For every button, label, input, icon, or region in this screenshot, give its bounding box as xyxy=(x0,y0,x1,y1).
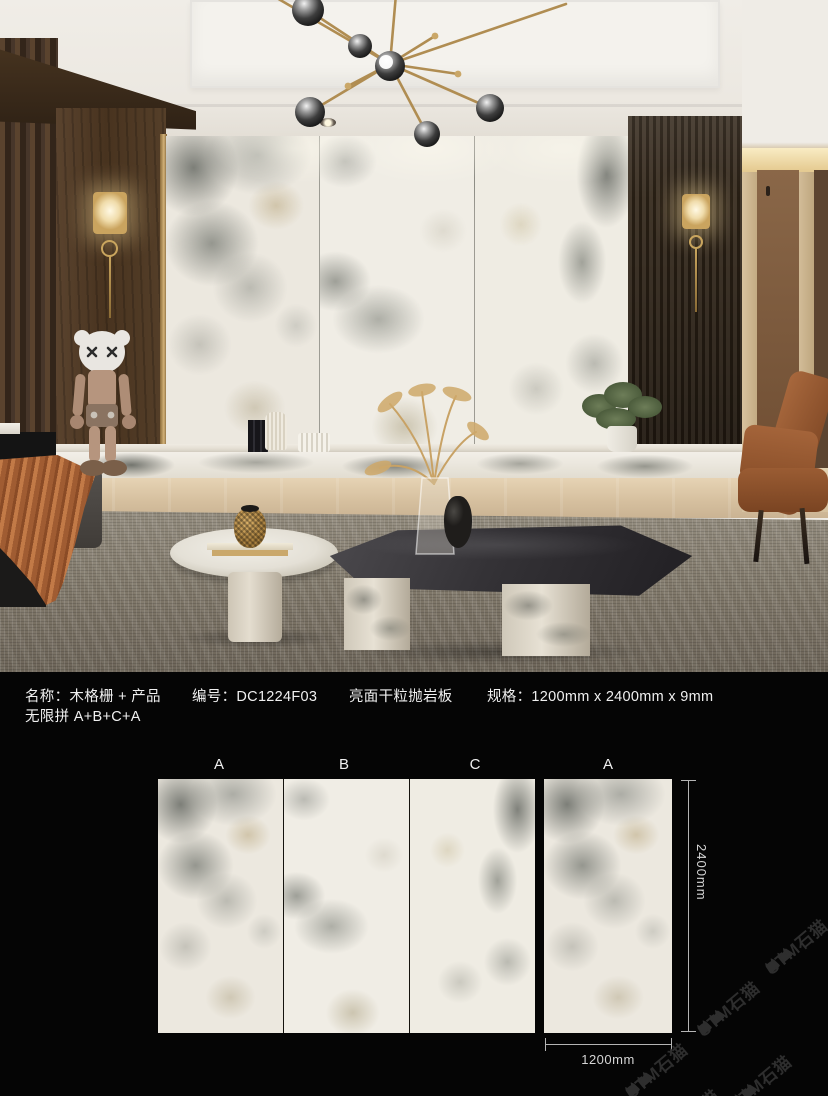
living-room-scene xyxy=(0,0,828,672)
black-vase xyxy=(444,496,472,548)
slab-a-single xyxy=(544,779,672,1033)
slab-c xyxy=(409,779,535,1033)
sconce-ring xyxy=(101,240,118,257)
sconce-shade xyxy=(93,192,127,234)
slab-label-c: C xyxy=(470,756,481,773)
sputnik-chandelier xyxy=(230,0,570,170)
chair-seat xyxy=(738,468,828,512)
dimension-tick xyxy=(545,1038,546,1051)
round-table-base xyxy=(228,572,282,642)
sconce-rod xyxy=(695,248,697,312)
product-spec: 规格：1200mm x 2400mm x 9mm xyxy=(487,685,713,706)
vase-mouth xyxy=(241,505,259,512)
slab-label-a: A xyxy=(214,756,224,773)
slab-panel-group xyxy=(158,779,535,1033)
kaws-figure xyxy=(62,328,148,480)
product-poster: 名称：木格栅 + 产品 编号：DC1224F03 亮面干粒抛岩板 规格：1200… xyxy=(0,0,828,1096)
coffee-table-books xyxy=(212,550,288,556)
slab-label-a2: A xyxy=(603,756,613,773)
sconce-ring xyxy=(689,235,703,249)
sconce-shade xyxy=(682,194,710,229)
slab-b xyxy=(283,779,409,1033)
product-name: 名称：木格栅 + 产品 xyxy=(25,685,161,706)
woven-gold-vase xyxy=(234,508,266,548)
product-finish: 亮面干粒抛岩板 xyxy=(349,685,453,706)
width-dimension-line xyxy=(545,1044,672,1045)
wall-sconce-left xyxy=(90,192,130,322)
stone-pedestal xyxy=(502,584,590,656)
dimension-tick xyxy=(681,780,696,781)
slab-a xyxy=(158,779,283,1033)
stacked-books xyxy=(0,423,20,434)
wall-sconce-right xyxy=(680,194,714,318)
leather-armchair xyxy=(736,372,828,568)
height-dimension-line xyxy=(688,780,689,1032)
product-combo: 无限拼 A+B+C+A xyxy=(25,705,141,726)
watermark-text: STM石猫 xyxy=(759,912,828,979)
watermark: STM石猫 xyxy=(760,859,828,977)
product-code: 编号：DC1224F03 xyxy=(192,685,317,706)
watermark-text: STM石猫 xyxy=(651,1082,724,1096)
product-info-band: 名称：木格栅 + 产品 编号：DC1224F03 亮面干粒抛岩板 规格：1200… xyxy=(0,672,828,748)
chair-leg xyxy=(753,510,763,562)
plant-pot xyxy=(607,426,637,452)
chair-leg xyxy=(800,508,810,564)
sconce-rod xyxy=(109,256,111,318)
ribbed-vase xyxy=(298,433,330,452)
pampas-grass-vase xyxy=(352,376,502,562)
decor-object xyxy=(265,412,287,450)
slab-diagram: A B C A 2400mm 1200mm STM石猫 STM石猫 xyxy=(0,748,828,1096)
watermark-text: STM石猫 xyxy=(691,974,764,1041)
width-dimension-label: 1200mm xyxy=(581,1052,635,1067)
slab-label-b: B xyxy=(339,756,349,773)
stone-pedestal xyxy=(344,578,410,650)
door-handle xyxy=(766,186,770,196)
height-dimension-label: 2400mm xyxy=(694,844,709,901)
